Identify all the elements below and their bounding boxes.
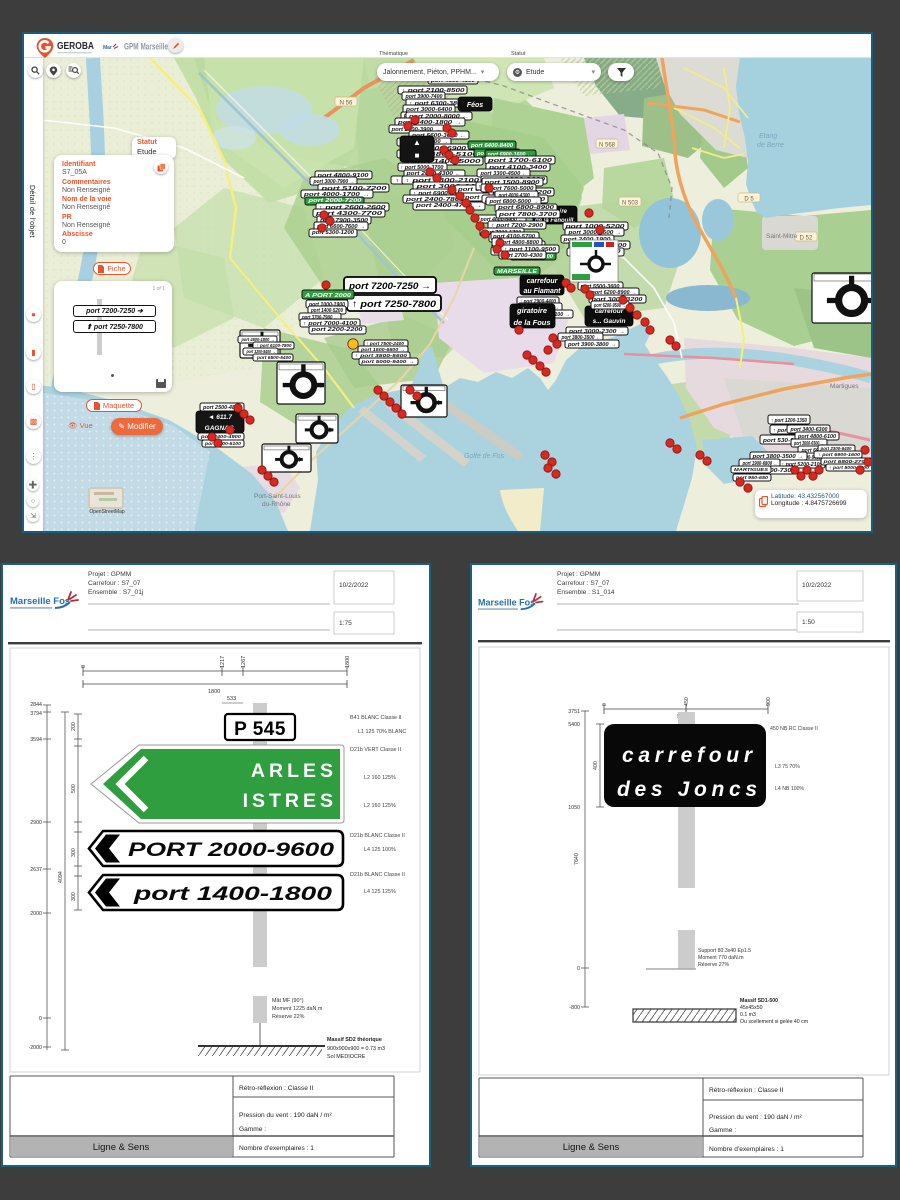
svg-text:300: 300 [71, 848, 77, 857]
svg-text:300: 300 [71, 892, 77, 901]
svg-text:B41 BLANC Classe II: B41 BLANC Classe II [350, 715, 402, 721]
svg-text:port 1400-1800: port 1400-1800 [133, 883, 333, 905]
svg-text:Etang: Etang [759, 133, 777, 140]
svg-text:7640: 7640 [574, 853, 580, 865]
svg-text:L3 75 70%: L3 75 70% [775, 764, 800, 770]
svg-text:port 6500-5400: port 6500-5400 [256, 355, 292, 360]
svg-text:D 5: D 5 [744, 196, 754, 202]
svg-text:N 568: N 568 [599, 142, 616, 148]
svg-text:port 7800-3700: port 7800-3700 [497, 212, 557, 218]
svg-text:2637: 2637 [30, 867, 42, 873]
svg-text:L1 125 70% BLANC: L1 125 70% BLANC [358, 729, 406, 735]
svg-text:port 2300-6400: port 2300-6400 [819, 446, 852, 451]
svg-text:L2 160 125%: L2 160 125% [364, 775, 396, 781]
svg-text:D21b BLANC Classe II: D21b BLANC Classe II [350, 872, 405, 878]
svg-text:Moment 1225 daN.m: Moment 1225 daN.m [272, 1006, 323, 1012]
svg-text:-2000: -2000 [28, 1045, 42, 1051]
svg-text:Gamme :: Gamme : [709, 1127, 736, 1134]
svg-text:Féos: Féos [467, 102, 483, 109]
svg-text:Ligne & Sens: Ligne & Sens [93, 1142, 150, 1153]
svg-text:Massif SD1-500: Massif SD1-500 [740, 998, 778, 1004]
svg-text:Réserve 22%: Réserve 22% [272, 1014, 305, 1020]
svg-text:ARLES: ARLES [251, 760, 337, 782]
svg-text:Martigues: Martigues [830, 383, 859, 390]
svg-text:450 NB RC Classe II: 450 NB RC Classe II [770, 726, 818, 732]
svg-text:Nombre d'exemplaires : 1: Nombre d'exemplaires : 1 [709, 1146, 784, 1153]
svg-text:MARTIGUES: MARTIGUES [734, 467, 768, 472]
svg-text:Sol MEDIOCRE: Sol MEDIOCRE [327, 1054, 366, 1060]
svg-text:10/2/2022: 10/2/2022 [339, 582, 369, 589]
svg-text:Pression du vent : 190 daN / m: Pression du vent : 190 daN / m² [239, 1112, 333, 1119]
svg-text:port 5000-9400 →: port 5000-9400 → [360, 359, 414, 364]
svg-text:0: 0 [577, 966, 580, 972]
svg-text:900x900x900 = 0.73 m3: 900x900x900 = 0.73 m3 [327, 1046, 385, 1052]
svg-text:port 6800-2700: port 6800-2700 [822, 459, 869, 464]
svg-text:L4 125 100%: L4 125 100% [364, 847, 396, 853]
svg-text:◄ 611.7: ◄ 611.7 [208, 414, 232, 421]
svg-text:2900: 2900 [30, 820, 42, 826]
svg-text:↑ port 3500-5600: ↑ port 3500-5600 [355, 353, 408, 358]
svg-text:carrefour: carrefour [622, 744, 754, 767]
svg-text:au Flamant: au Flamant [524, 288, 562, 295]
svg-text:▲: ▲ [413, 138, 421, 147]
svg-text:MARSEILLE: MARSEILLE [497, 269, 538, 275]
svg-text:2844: 2844 [30, 702, 42, 708]
svg-text:port 5300-1200: port 5300-1200 [311, 230, 354, 236]
svg-text:Mât MF (90°): Mât MF (90°) [272, 998, 304, 1004]
svg-text:1800: 1800 [208, 689, 220, 695]
svg-text:↑ port 7250-7800: ↑ port 7250-7800 [352, 299, 437, 310]
svg-text:Massif SD2 théorique: Massif SD2 théorique [327, 1037, 382, 1043]
svg-text:533: 533 [227, 696, 236, 702]
svg-text:1:75: 1:75 [339, 620, 352, 627]
svg-text:Support 80.3x40 Ep1.5: Support 80.3x40 Ep1.5 [698, 948, 751, 954]
svg-text:D21b VERT Classe II: D21b VERT Classe II [350, 747, 401, 753]
svg-text:Pression du vent : 190 daN / m: Pression du vent : 190 daN / m² [709, 1114, 803, 1121]
svg-text:port 4500-1800 →: port 4500-1800 → [241, 337, 275, 342]
svg-text:D21b BLANC Classe II: D21b BLANC Classe II [350, 833, 405, 839]
svg-text:L4 125 125%: L4 125 125% [364, 889, 396, 895]
svg-text:0: 0 [81, 665, 87, 668]
svg-text:du-Rhône: du-Rhône [262, 501, 291, 508]
svg-text:port 6400-8400: port 6400-8400 [470, 143, 513, 149]
svg-text:Saint-Mitre: Saint-Mitre [766, 233, 798, 240]
svg-text:Gamme :: Gamme : [239, 1126, 266, 1133]
svg-text:Carrefour : S7_07: Carrefour : S7_07 [557, 580, 610, 587]
svg-text:Rétro-réflexion : Classe II: Rétro-réflexion : Classe II [239, 1085, 314, 1092]
svg-text:↑ port 7500-2400: ↑ port 7500-2400 [366, 341, 405, 346]
svg-text:s... Gauvin: s... Gauvin [593, 318, 626, 325]
svg-text:-800: -800 [569, 1005, 580, 1011]
svg-text:900: 900 [766, 697, 772, 706]
svg-text:Mar: Mar [103, 45, 112, 51]
svg-text:0.1 m3: 0.1 m3 [740, 1012, 756, 1018]
svg-text:port 7400-4900: port 7400-4900 [200, 434, 242, 439]
svg-text:500: 500 [71, 784, 77, 793]
svg-text:400: 400 [593, 761, 599, 770]
svg-text:5400: 5400 [568, 722, 580, 728]
svg-text:GEROBA: GEROBA [57, 41, 94, 52]
svg-text:450: 450 [684, 697, 690, 706]
svg-text:Carrefour : S7_07: Carrefour : S7_07 [88, 580, 141, 587]
svg-text:↑ port 6100-7800: ↑ port 6100-7800 [257, 343, 293, 348]
svg-text:3751: 3751 [568, 709, 580, 715]
svg-text:L2 160 125%: L2 160 125% [364, 803, 396, 809]
svg-text:■: ■ [415, 151, 420, 160]
svg-text:3794: 3794 [30, 711, 42, 717]
svg-text:200: 200 [71, 722, 77, 731]
svg-text:Nombre d'exemplaires : 1: Nombre d'exemplaires : 1 [239, 1145, 314, 1152]
svg-text:↑ port 6900-1600: ↑ port 6900-1600 [818, 452, 861, 457]
svg-text:carrefour: carrefour [527, 278, 559, 285]
svg-text:de Berre: de Berre [757, 142, 784, 149]
svg-text:L4 NB 100%: L4 NB 100% [775, 786, 805, 792]
svg-text:ISTRES: ISTRES [243, 790, 337, 812]
svg-text:Marseille Fos: Marseille Fos [10, 596, 70, 607]
svg-text:Ligne & Sens: Ligne & Sens [563, 1142, 620, 1153]
svg-text:↑ port 1200-1350: ↑ port 1200-1350 [771, 418, 808, 424]
svg-text:Réserve 27%: Réserve 27% [698, 962, 730, 968]
svg-text:P 545: P 545 [234, 719, 286, 740]
svg-text:3594: 3594 [30, 737, 42, 743]
svg-text:10/2/2022: 10/2/2022 [802, 582, 832, 589]
svg-text:giratoire: giratoire [516, 306, 547, 315]
svg-text:Projet : GPMM: Projet : GPMM [88, 571, 131, 578]
svg-text:port 2200-2200: port 2200-2200 [310, 327, 363, 333]
svg-text:Ou scellement si gelée 40 cm: Ou scellement si gelée 40 cm [740, 1019, 808, 1025]
svg-text:port 3200-8400 →: port 3200-8400 → [246, 349, 276, 354]
svg-text:port 1500-6500 →: port 1500-6500 → [360, 347, 405, 352]
svg-text:Marseille Fos: Marseille Fos [478, 597, 535, 607]
svg-text:0: 0 [39, 1016, 42, 1022]
svg-text:port 6200-5100: port 6200-5100 [204, 441, 242, 446]
svg-text:2000: 2000 [30, 911, 42, 917]
svg-text:N 503: N 503 [622, 200, 639, 206]
svg-text:Ensemble : S7_01j: Ensemble : S7_01j [88, 589, 144, 596]
svg-text:D 52: D 52 [800, 235, 813, 241]
svg-text:1217: 1217 [220, 656, 226, 668]
svg-text:Rétro-réflexion : Classe II: Rétro-réflexion : Classe II [709, 1087, 784, 1094]
svg-text:1267: 1267 [241, 656, 247, 668]
svg-text:des Joncs: des Joncs [617, 778, 757, 801]
svg-text:A PORT 2000: A PORT 2000 [304, 293, 352, 299]
svg-text:4094: 4094 [58, 871, 64, 883]
svg-text:PORT 2000-9600: PORT 2000-9600 [128, 839, 334, 861]
svg-text:GPM Marseille: GPM Marseille [124, 42, 168, 52]
svg-text:1800: 1800 [345, 656, 351, 668]
svg-text:1:50: 1:50 [802, 619, 815, 626]
svg-text:45x45x50: 45x45x50 [740, 1005, 763, 1011]
svg-text:Moment 770 daN.m: Moment 770 daN.m [698, 955, 744, 961]
svg-text:Port-Saint-Louis: Port-Saint-Louis [254, 493, 301, 500]
svg-text:port 3900-3800 →: port 3900-3800 → [567, 342, 616, 348]
svg-text:Golfe de Fos: Golfe de Fos [464, 453, 505, 460]
svg-text:Projet : GPMM: Projet : GPMM [557, 571, 600, 578]
svg-text:Ensemble : S1_014: Ensemble : S1_014 [557, 589, 615, 596]
svg-text:port 7200-7250 →: port 7200-7250 → [348, 281, 431, 292]
svg-text:0: 0 [602, 703, 608, 706]
svg-text:N 56: N 56 [340, 100, 353, 106]
svg-text:1050: 1050 [568, 805, 580, 811]
